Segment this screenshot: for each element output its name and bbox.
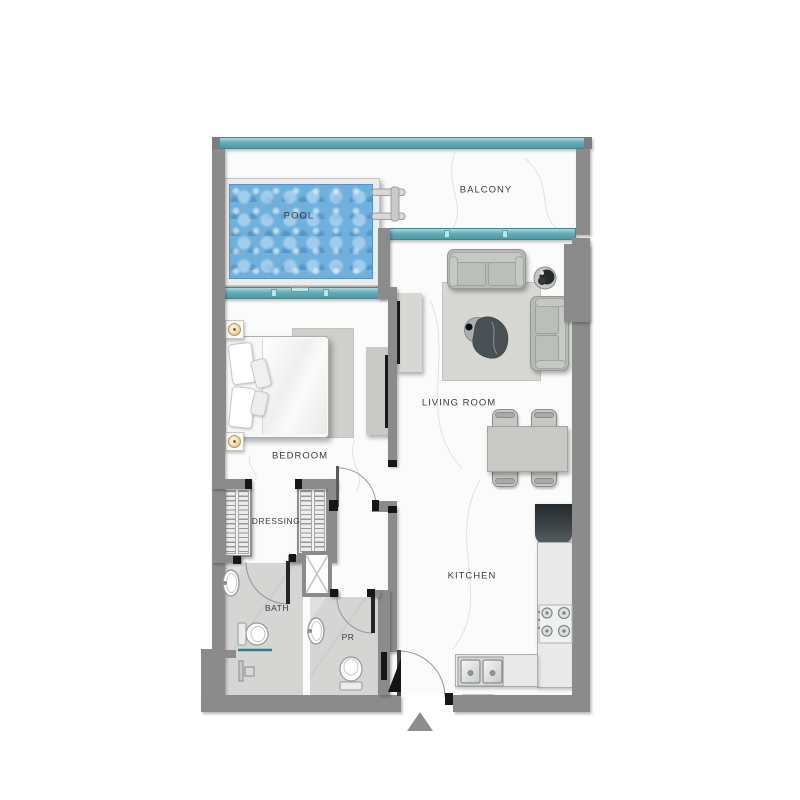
window-mullion bbox=[502, 230, 508, 238]
wall-pr-right bbox=[378, 590, 390, 695]
bath-floor bbox=[225, 563, 303, 695]
wall-pr-top-right bbox=[369, 590, 380, 597]
wall-bath-top-left bbox=[212, 555, 242, 563]
wall-step bbox=[201, 649, 214, 697]
window-mullion bbox=[323, 289, 329, 297]
floor-lamp-icon bbox=[228, 323, 241, 336]
tv-icon bbox=[397, 301, 400, 364]
nightstand bbox=[225, 432, 244, 451]
room-label-living-room: LIVING ROOM bbox=[422, 398, 496, 409]
room-label-pool: POOL bbox=[284, 211, 314, 222]
entrance-arrow-icon bbox=[407, 712, 433, 731]
nightstand bbox=[225, 320, 244, 339]
bed bbox=[225, 336, 329, 438]
window-mullion bbox=[444, 230, 450, 238]
wall-pillar bbox=[564, 244, 590, 322]
railing-cap bbox=[584, 137, 592, 149]
kitchen-counter-bottom bbox=[455, 654, 538, 687]
balcony-railing bbox=[212, 137, 592, 149]
wardrobe bbox=[222, 487, 252, 557]
wall-right-upper bbox=[576, 149, 590, 235]
room-label-bath: BATH bbox=[265, 603, 289, 613]
wall-left bbox=[212, 149, 225, 695]
wall-bottom-left bbox=[201, 695, 401, 712]
wall-bottom-right bbox=[453, 695, 590, 712]
floor-plan: BALCONY POOL LIVING ROOM BEDROOM DRESSIN… bbox=[0, 0, 800, 800]
kitchen-counter-right bbox=[537, 542, 573, 688]
living-room-rug bbox=[442, 282, 541, 381]
window-handle bbox=[291, 287, 309, 292]
fridge bbox=[535, 504, 572, 544]
room-label-kitchen: KITCHEN bbox=[448, 571, 497, 582]
pool-water bbox=[229, 184, 373, 279]
sofa-top bbox=[447, 249, 526, 289]
room-label-balcony: BALCONY bbox=[460, 185, 512, 196]
room-label-bedroom: BEDROOM bbox=[272, 451, 328, 462]
dining-table bbox=[487, 426, 568, 472]
floor-lamp-icon bbox=[228, 435, 241, 448]
service-shaft bbox=[302, 551, 332, 597]
wall-dressing-top-left bbox=[212, 479, 252, 489]
living-room-window bbox=[386, 228, 576, 240]
shower-bench bbox=[222, 650, 236, 658]
wardrobe bbox=[297, 487, 328, 555]
room-label-pr: PR bbox=[342, 632, 355, 642]
wall-tv bbox=[388, 287, 397, 466]
railing-cap bbox=[212, 137, 220, 149]
pr-floor bbox=[310, 597, 378, 695]
window-mullion bbox=[271, 289, 277, 297]
room-label-dressing: DRESSING bbox=[252, 516, 300, 526]
